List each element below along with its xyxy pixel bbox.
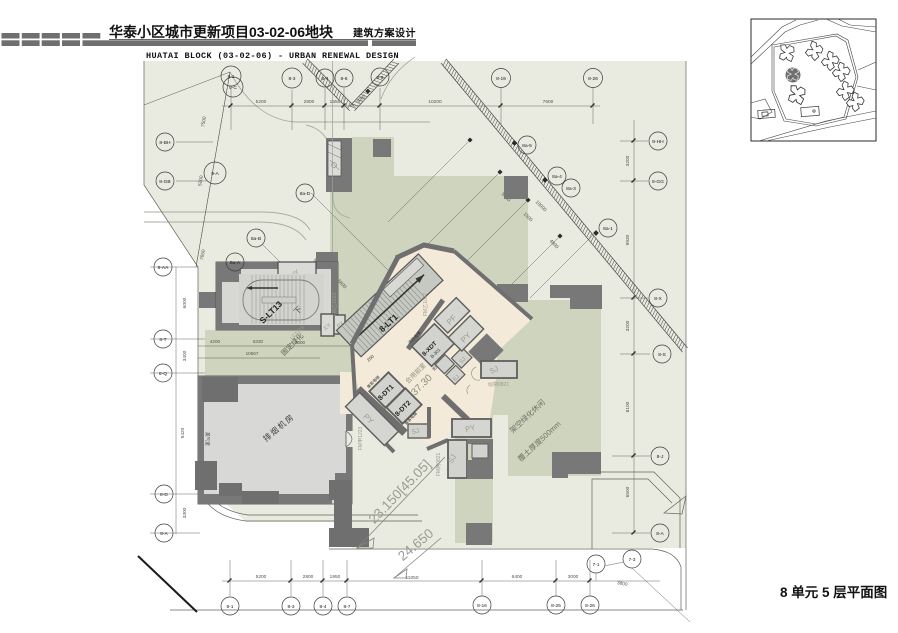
svg-text:8-3: 8-3 <box>287 604 294 610</box>
svg-text:8a-A: 8a-A <box>230 260 241 266</box>
svg-text:8-1: 8-1 <box>226 604 233 610</box>
svg-text:8-D: 8-D <box>160 492 168 498</box>
svg-text:8a-4: 8a-4 <box>552 174 562 180</box>
svg-text:8-4: 8-4 <box>319 604 326 610</box>
svg-text:3300: 3300 <box>182 507 188 518</box>
svg-text:8-25: 8-25 <box>551 603 561 609</box>
svg-text:5200: 5200 <box>256 574 267 580</box>
svg-text:8a-1: 8a-1 <box>603 226 613 232</box>
svg-text:1950: 1950 <box>330 574 341 580</box>
svg-text:FM两0821: FM两0821 <box>436 452 442 476</box>
svg-text:8100: 8100 <box>625 401 631 412</box>
svg-text:8-J: 8-J <box>657 454 664 460</box>
svg-text:9-A: 9-A <box>211 171 219 177</box>
svg-text:FM乙1077: FM乙1077 <box>422 292 429 316</box>
svg-text:FM甲1223: FM甲1223 <box>358 426 364 450</box>
svg-text:8-A: 8-A <box>160 531 168 537</box>
svg-text:8-BH: 8-BH <box>159 140 171 146</box>
svg-text:8-S: 8-S <box>658 352 666 358</box>
svg-text:8-26: 8-26 <box>585 603 595 609</box>
svg-text:8-Q: 8-Q <box>159 371 167 377</box>
svg-text:7600: 7600 <box>543 99 554 105</box>
svg-text:2800: 2800 <box>304 99 315 105</box>
svg-text:5200: 5200 <box>256 99 267 105</box>
svg-text:8-T: 8-T <box>159 337 166 343</box>
svg-text:8a-B: 8a-B <box>251 236 261 242</box>
svg-text:10200: 10200 <box>428 99 442 105</box>
svg-text:8-4: 8-4 <box>321 76 328 82</box>
svg-text:8-9: 8-9 <box>376 75 383 81</box>
svg-text:8-16: 8-16 <box>477 603 487 609</box>
svg-text:8a-3: 8a-3 <box>566 186 576 192</box>
svg-text:8-AA: 8-AA <box>158 265 170 271</box>
svg-text:HUATAI BLOCK (03-02-06) - UR: HUATAI BLOCK (03-02-06) - URBAN RENEWAL … <box>146 51 399 61</box>
svg-text:6000: 6000 <box>182 297 188 308</box>
svg-text:6500: 6500 <box>625 486 631 497</box>
svg-text:8a-5: 8a-5 <box>522 143 532 149</box>
svg-text:9420: 9420 <box>180 427 186 438</box>
svg-text:3200: 3200 <box>625 155 631 166</box>
svg-text:8a-D: 8a-D <box>300 191 311 197</box>
svg-text:2800: 2800 <box>303 574 314 580</box>
svg-text:4200: 4200 <box>210 339 221 344</box>
svg-text:8-GG: 8-GG <box>652 179 664 185</box>
svg-text:7-3: 7-3 <box>628 557 635 563</box>
svg-text:5330: 5330 <box>253 339 264 344</box>
svg-text:美气室: 美气室 <box>204 432 211 446</box>
svg-text:9-C: 9-C <box>229 85 237 91</box>
svg-text:3400: 3400 <box>182 350 188 361</box>
svg-text:9930: 9930 <box>625 234 631 245</box>
svg-text:6400: 6400 <box>512 574 523 580</box>
svg-text:3800: 3800 <box>616 580 628 588</box>
svg-text:1550: 1550 <box>330 99 341 105</box>
svg-text:3000: 3000 <box>568 574 579 580</box>
svg-text:8-GB: 8-GB <box>159 179 170 185</box>
svg-text:10567: 10567 <box>246 351 259 356</box>
svg-text:建筑方案设计: 建筑方案设计 <box>352 27 416 40</box>
svg-text:8-19: 8-19 <box>496 76 506 82</box>
svg-text:8-6: 8-6 <box>340 76 347 82</box>
svg-text:8-26: 8-26 <box>588 76 598 82</box>
svg-text:8-7: 8-7 <box>343 604 350 610</box>
svg-text:似朔0821: 似朔0821 <box>488 381 509 388</box>
svg-text:3200: 3200 <box>625 320 631 331</box>
svg-text:8 单元 5 层平面图: 8 单元 5 层平面图 <box>780 584 887 600</box>
svg-text:7-1: 7-1 <box>592 562 599 568</box>
svg-text:8-1: 8-1 <box>227 74 234 80</box>
svg-text:8-A: 8-A <box>656 531 664 537</box>
svg-text:华泰小区城市更新项目03-02-06地块: 华泰小区城市更新项目03-02-06地块 <box>109 24 334 40</box>
svg-text:11050: 11050 <box>406 575 419 581</box>
svg-text:FM乙1623: FM乙1623 <box>331 292 338 316</box>
svg-text:8-3: 8-3 <box>288 76 295 82</box>
svg-text:8-HH: 8-HH <box>652 139 664 145</box>
svg-text:8-X: 8-X <box>654 296 662 302</box>
